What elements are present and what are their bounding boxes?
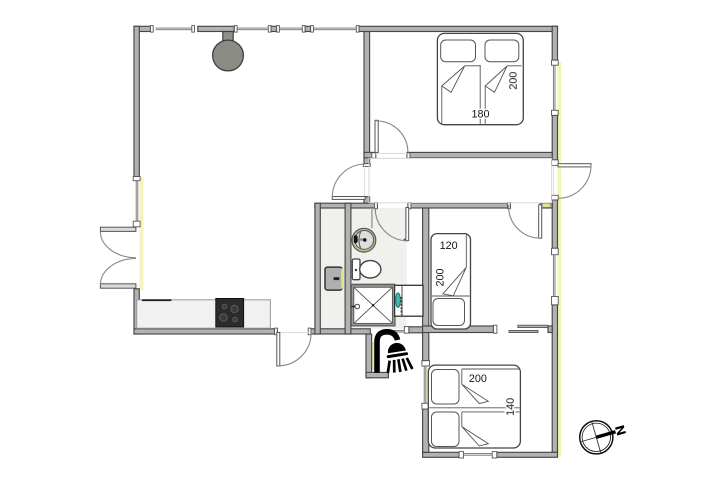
- svg-text:180: 180: [471, 109, 489, 121]
- svg-text:140: 140: [505, 398, 517, 416]
- svg-text:200: 200: [508, 72, 520, 90]
- svg-text:120: 120: [440, 240, 458, 252]
- svg-text:200: 200: [469, 373, 487, 385]
- svg-text:200: 200: [435, 268, 447, 286]
